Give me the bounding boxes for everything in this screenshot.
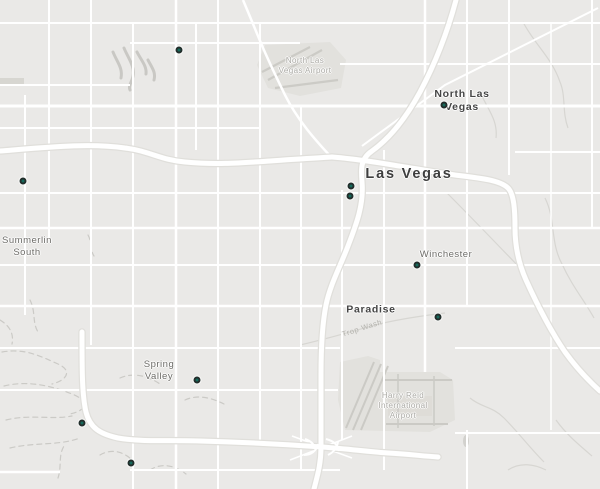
label-spring-valley: Spring Valley xyxy=(144,359,174,383)
map-marker[interactable] xyxy=(348,183,355,190)
map-marker[interactable] xyxy=(194,377,201,384)
label-summerlin-south: Summerlin South xyxy=(2,235,52,259)
map-marker[interactable] xyxy=(128,460,135,467)
map-marker[interactable] xyxy=(176,47,183,54)
label-paradise: Paradise xyxy=(346,304,395,317)
label-harry-reid-airport: Harry Reid International Airport xyxy=(378,391,427,421)
map-marker[interactable] xyxy=(435,314,442,321)
map-canvas[interactable]: North Las Vegas Airport North Las Vegas … xyxy=(0,0,600,489)
map-marker[interactable] xyxy=(441,102,448,109)
map-marker[interactable] xyxy=(414,262,421,269)
map-marker[interactable] xyxy=(20,178,27,185)
map-marker[interactable] xyxy=(79,420,86,427)
label-las-vegas: Las Vegas xyxy=(365,166,452,182)
map-marker[interactable] xyxy=(347,193,354,200)
label-winchester: Winchester xyxy=(420,249,473,261)
label-north-las-vegas-airport: North Las Vegas Airport xyxy=(279,56,332,76)
